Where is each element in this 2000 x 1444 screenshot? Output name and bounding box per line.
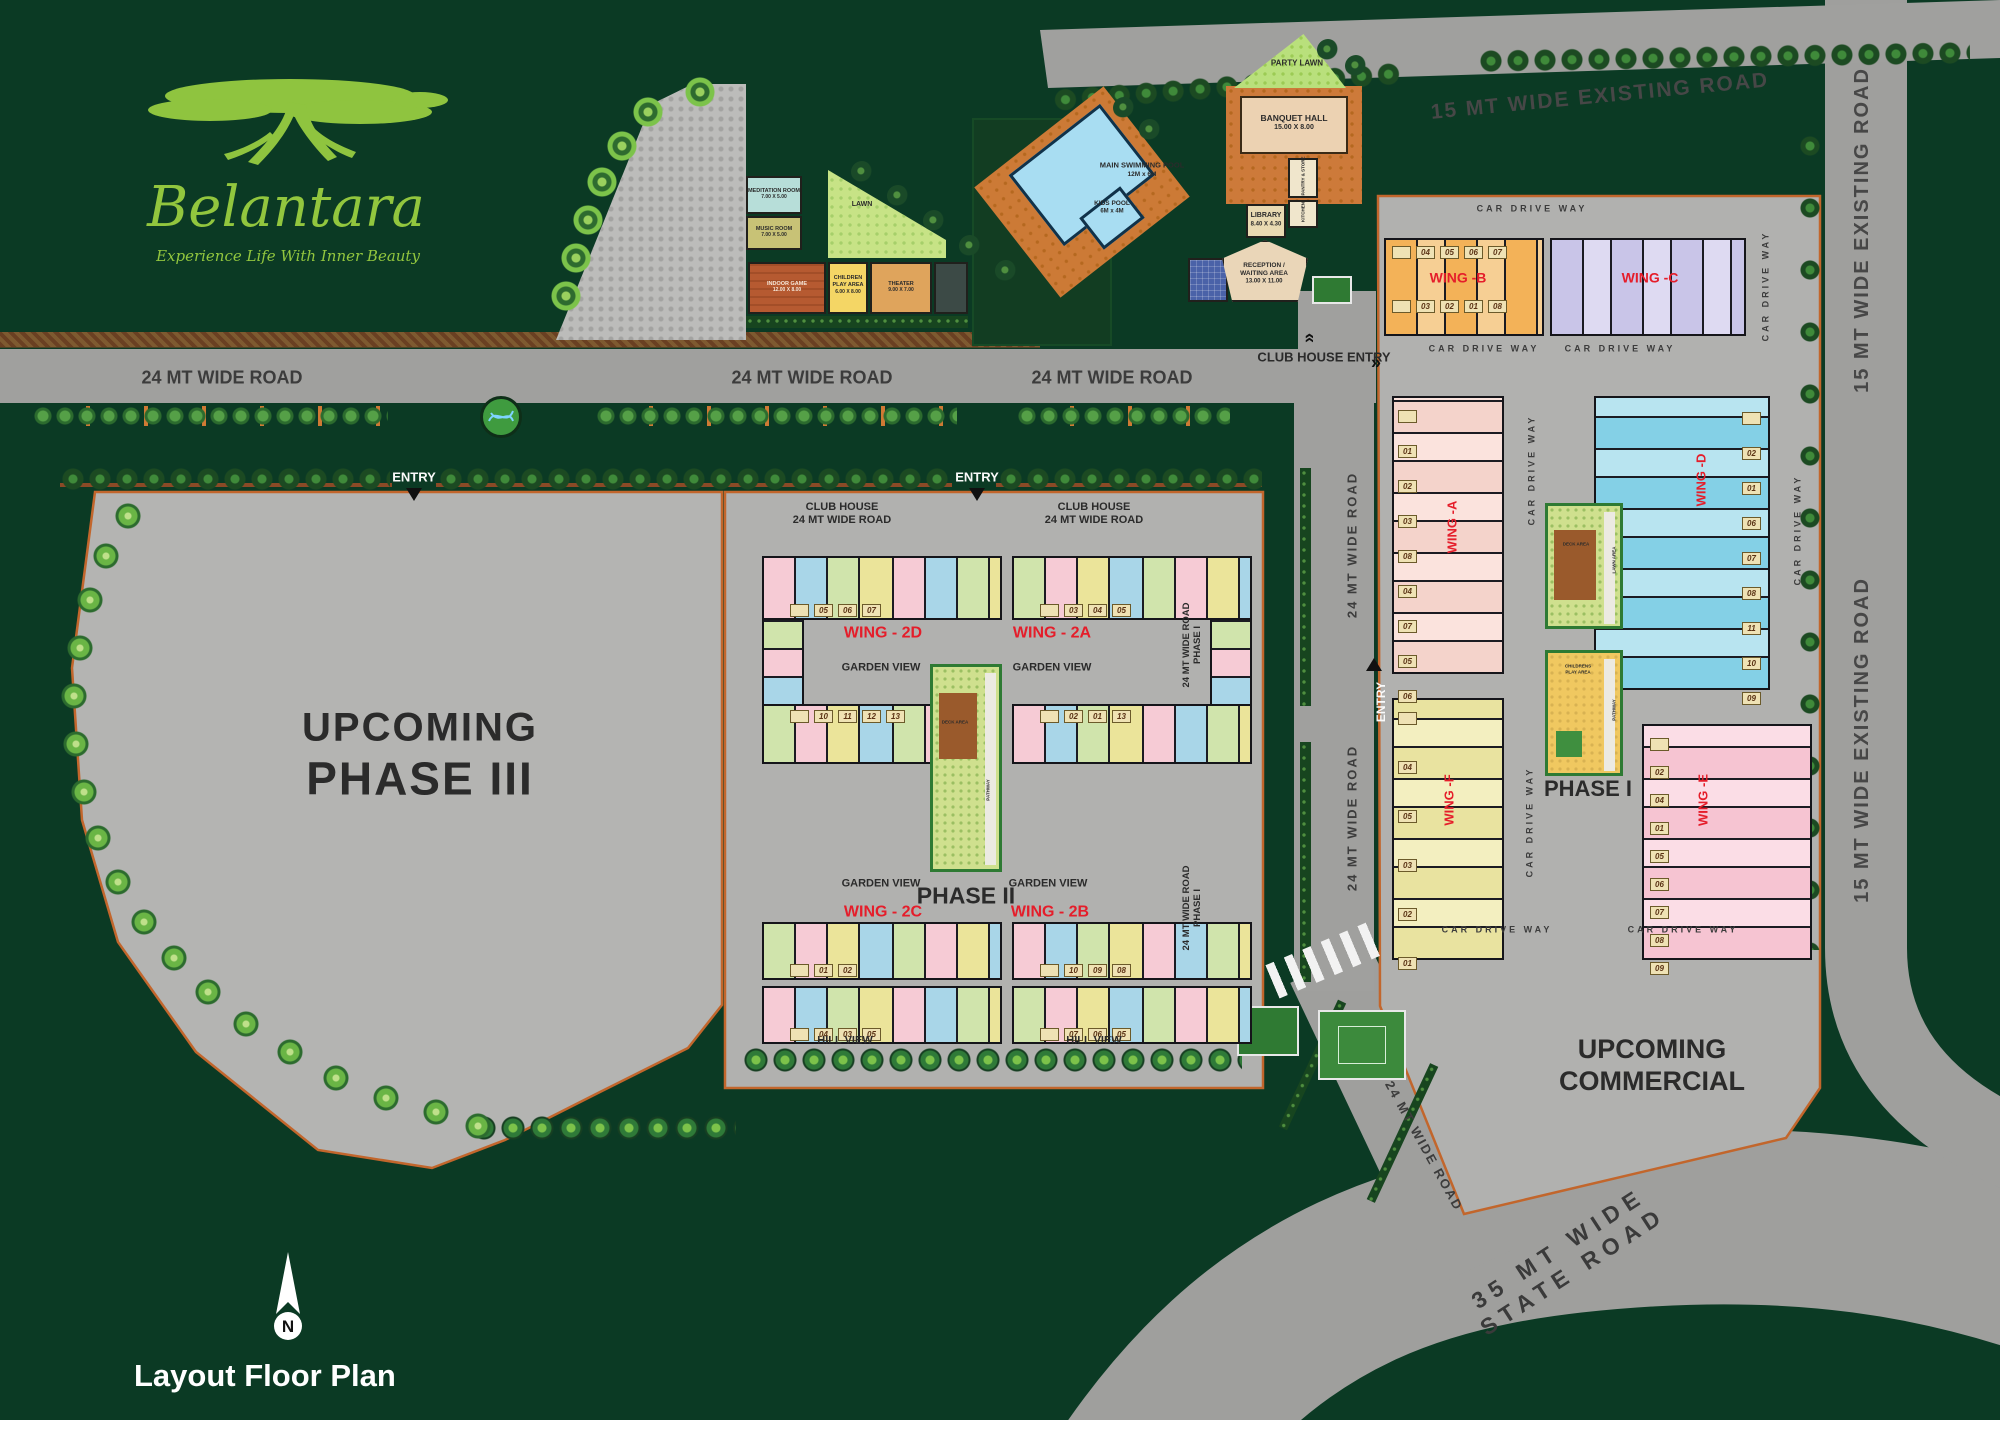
- unit-number: 11: [838, 710, 857, 723]
- unit-number: 07: [1742, 552, 1761, 565]
- sport-court-large: [1318, 1010, 1406, 1080]
- tree-row: [470, 1114, 736, 1142]
- childrens-play-line1: CHILDRENS: [1565, 663, 1591, 668]
- unit-number: 01: [814, 964, 833, 977]
- reception-line1: RECEPTION /: [1243, 262, 1285, 270]
- music-dim: 7.00 X 5.00: [761, 233, 787, 239]
- banquet-hall-label: BANQUET HALL: [1260, 113, 1327, 123]
- library-label: LIBRARY: [1251, 212, 1282, 220]
- unit-number: 02: [1440, 300, 1459, 313]
- unit-number: [790, 710, 809, 723]
- club-sport-court: [1312, 276, 1352, 304]
- unit-numbers-wing-f: 0405030201: [1398, 712, 1417, 970]
- unit-number: 04: [1398, 761, 1417, 774]
- car-drive-way-label: CAR DRIVE WAY: [1429, 344, 1540, 355]
- unit-number: 08: [1112, 964, 1131, 977]
- main-pool-label: MAIN SWIMMING POOL: [1100, 162, 1185, 171]
- tree-icon: [323, 1065, 349, 1091]
- sheet-edge: [0, 1420, 2000, 1444]
- unit-number: 09: [1088, 964, 1107, 977]
- building-wing-2d-west: [762, 618, 804, 706]
- play-lawn-patch: [1556, 731, 1582, 757]
- tree-icon: [995, 260, 1017, 282]
- phase3-line2: PHASE III: [302, 751, 538, 805]
- north-boundary-wall: [0, 332, 1040, 347]
- unit-number: 02: [838, 964, 857, 977]
- logo-wordmark: Belantara: [147, 175, 425, 241]
- phase1-label: PHASE I: [1544, 776, 1632, 802]
- hill-view-label: HILL VIEW: [1066, 1035, 1121, 1048]
- unit-number: 06: [1650, 878, 1669, 891]
- indoor-game-dim: 12.00 X 8.00: [773, 288, 801, 294]
- unit-number: 03: [1398, 515, 1417, 528]
- unit-number: 08: [1650, 934, 1669, 947]
- phase2-east-road-label-upper: 24 MT WIDE ROAD PHASE I: [1181, 603, 1203, 688]
- unit-number: [1398, 410, 1417, 423]
- unit-number: 04: [1416, 246, 1435, 259]
- unit-numbers-wing-2c-top: 0102: [790, 964, 857, 977]
- unit-number: [1392, 246, 1411, 259]
- court-markings: [1338, 1026, 1386, 1064]
- unit-number: 03: [1064, 604, 1083, 617]
- unit-number: 06: [838, 604, 857, 617]
- club-entry-up-arrow-icon: »: [1298, 333, 1319, 343]
- car-drive-way-label: CAR DRIVE WAY: [1793, 475, 1804, 586]
- north-compass-icon: N: [258, 1252, 318, 1344]
- unit-number: 05: [1440, 246, 1459, 259]
- phase1-lawn-label: LAWN AREA: [1611, 546, 1616, 573]
- road-label-main-2: 24 MT WIDE ROAD: [731, 367, 892, 388]
- tree-icon: [93, 543, 119, 569]
- wing-2b-label: WING - 2B: [1011, 904, 1089, 923]
- tree-icon: [77, 587, 103, 613]
- unit-numbers-wing-e: 0204010506070809: [1650, 738, 1669, 975]
- unit-number: 08: [1398, 550, 1417, 563]
- unit-number: 06: [1464, 246, 1483, 259]
- tree-icon: [633, 97, 663, 127]
- phase3-area-label: UPCOMING PHASE III: [302, 704, 538, 805]
- wing-f-label: WING -F: [1441, 774, 1456, 825]
- club-house-line1: CLUB HOUSE: [1045, 501, 1143, 514]
- commercial-area-label: UPCOMING COMMERCIAL: [1559, 1034, 1745, 1098]
- phase3-line1: UPCOMING: [302, 704, 538, 751]
- hill-view-label: HILL VIEW: [817, 1035, 872, 1048]
- wing-2d-label: WING - 2D: [844, 625, 922, 644]
- entry-arrow-west-icon: [406, 488, 422, 501]
- unit-number: 10: [814, 710, 833, 723]
- kids-pool-label: KIDS POOL: [1094, 200, 1130, 208]
- unit-numbers-wing-2a-bottom: 020113: [1040, 710, 1131, 723]
- unit-number: 01: [1742, 482, 1761, 495]
- tree-icon: [1345, 55, 1367, 77]
- unit-number: 13: [1112, 710, 1131, 723]
- car-drive-way-label: CAR DRIVE WAY: [1525, 767, 1536, 878]
- tree-icon: [423, 1099, 449, 1125]
- deck-area: [939, 693, 977, 759]
- wing-b-label: WING -B: [1430, 270, 1487, 287]
- meditation-dim: 7.00 X 5.00: [761, 195, 787, 201]
- tree-icon: [959, 235, 981, 257]
- commercial-line1: UPCOMING: [1559, 1034, 1745, 1066]
- unit-number: 02: [1064, 710, 1083, 723]
- logo-tagline: Experience Life With Inner Beauty: [156, 248, 420, 266]
- unit-number: 04: [1650, 794, 1669, 807]
- phase2-deck-label: DECK AREA: [942, 719, 969, 724]
- garden-pathway: [985, 673, 996, 865]
- tree-icon: [685, 77, 715, 107]
- club-entry-right-arrow-icon: »: [1371, 352, 1381, 373]
- tree-icon: [1139, 119, 1161, 141]
- kitchen-label: KITCHEN: [1300, 202, 1305, 222]
- road-label-right-existing-upper: 15 MT WIDE EXISTING ROAD: [1851, 67, 1875, 393]
- building-wing-2a-east: [1210, 618, 1252, 706]
- unit-numbers-wing-2b-top: 100908: [1040, 964, 1131, 977]
- unit-number: 03: [1398, 859, 1417, 872]
- unit-numbers-wing-d: 0201060708111009: [1742, 412, 1761, 705]
- wing-c-label: WING -C: [1622, 270, 1679, 287]
- tree-row: [998, 466, 1262, 493]
- unit-number: 01: [1650, 822, 1669, 835]
- unit-number: 10: [1742, 657, 1761, 670]
- club-house-line2: 24 MT WIDE ROAD: [793, 514, 891, 527]
- tree-icon: [551, 281, 581, 311]
- p2edge-line2: PHASE I: [1192, 866, 1203, 951]
- compass-n-letter: N: [282, 1317, 294, 1336]
- childrens-play-line2: PLAY AREA: [1565, 669, 1590, 674]
- unit-number: 01: [1464, 300, 1483, 313]
- tree-icon: [277, 1039, 303, 1065]
- layout-floor-plan-canvas: Belantara Experience Life With Inner Bea…: [0, 0, 2000, 1444]
- tree-icon: [561, 243, 591, 273]
- unit-number: 05: [1112, 604, 1131, 617]
- tree-icon: [71, 779, 97, 805]
- tree-icon: [63, 731, 89, 757]
- unit-number: 05: [814, 604, 833, 617]
- unit-number: 06: [1398, 690, 1417, 703]
- unit-number: [1650, 738, 1669, 751]
- tree-icon: [851, 161, 873, 183]
- road-hedge: [1300, 468, 1311, 706]
- roundabout: [480, 396, 522, 438]
- unit-numbers-wing-b-bottom: 03020108: [1392, 300, 1507, 313]
- phase1-deck-label: DECK AREA: [1563, 541, 1590, 546]
- phase2-label: PHASE II: [917, 882, 1015, 909]
- club-lawn-label: LAWN: [852, 201, 873, 209]
- tree-icon: [105, 869, 131, 895]
- p2edge-line1: 24 MT WIDE ROAD: [1181, 866, 1192, 951]
- unit-number: 07: [1650, 906, 1669, 919]
- car-drive-way-label: CAR DRIVE WAY: [1565, 344, 1676, 355]
- tree-icon: [195, 979, 221, 1005]
- club-house-line1: CLUB HOUSE: [793, 501, 891, 514]
- unit-number: 02: [1650, 766, 1669, 779]
- wing-a-label: WING -A: [1444, 501, 1459, 554]
- tree-row: [60, 466, 390, 493]
- reception-line2: WAITING AREA: [1240, 270, 1288, 278]
- tree-icon: [607, 131, 637, 161]
- tree-icon: [115, 503, 141, 529]
- tree-row: [742, 1046, 1242, 1076]
- tree-icon: [923, 210, 945, 232]
- club-hedge: [746, 316, 968, 328]
- unit-number: 09: [1742, 692, 1761, 705]
- entry-arrow-center-icon: [969, 488, 985, 501]
- road-label-main-3: 24 MT WIDE ROAD: [1031, 367, 1192, 388]
- toilets-block: [934, 262, 968, 314]
- club-house-road-label-left: CLUB HOUSE 24 MT WIDE ROAD: [793, 501, 891, 527]
- road-median-planter: [1016, 406, 1230, 426]
- phase2-pathway-label: PATHWAY: [985, 779, 990, 800]
- unit-number: [1040, 1028, 1059, 1041]
- unit-number: 13: [886, 710, 905, 723]
- tree-row: [438, 466, 952, 493]
- unit-number: 11: [1742, 622, 1761, 635]
- blue-tiled-patio: [1188, 258, 1228, 302]
- banquet-hall-dim: 15.00 X 8.00: [1274, 124, 1314, 132]
- tree-icon: [465, 1113, 491, 1139]
- unit-number: 05: [1398, 655, 1417, 668]
- garden-view-label: GARDEN VIEW: [1009, 878, 1088, 891]
- commercial-line2: COMMERCIAL: [1559, 1066, 1745, 1098]
- wing-e-label: WING -E: [1695, 774, 1710, 826]
- reception-dim: 13.00 X 11.00: [1245, 278, 1282, 285]
- unit-number: 10: [1064, 964, 1083, 977]
- unit-numbers-wing-2d-top: 050607: [790, 604, 881, 617]
- car-drive-way-label: CAR DRIVE WAY: [1628, 925, 1739, 936]
- wing-d-label: WING -D: [1693, 454, 1708, 507]
- unit-number: 08: [1488, 300, 1507, 313]
- plan-title: Layout Floor Plan: [134, 1358, 396, 1394]
- tree-icon: [587, 167, 617, 197]
- unit-number: [1040, 604, 1059, 617]
- unit-numbers-wing-2a-top: 030405: [1040, 604, 1131, 617]
- car-drive-way-label: CAR DRIVE WAY: [1477, 204, 1588, 215]
- unit-numbers-wing-2d-bottom: 10111213: [790, 710, 905, 723]
- road-label-central-upper: 24 MT WIDE ROAD: [1344, 472, 1359, 618]
- unit-number: 02: [1398, 908, 1417, 921]
- car-drive-way-label: CAR DRIVE WAY: [1761, 231, 1772, 342]
- tree-icon: [161, 945, 187, 971]
- unit-number: 05: [1398, 810, 1417, 823]
- tree-icon: [233, 1011, 259, 1037]
- road-label-right-existing-lower: 15 MT WIDE EXISTING ROAD: [1851, 577, 1875, 903]
- tree-icon: [373, 1085, 399, 1111]
- roundabout-sculpture-icon: [483, 399, 519, 435]
- unit-number: 12: [862, 710, 881, 723]
- wing-2c-label: WING - 2C: [844, 904, 922, 923]
- unit-number: 01: [1398, 957, 1417, 970]
- unit-number: [1392, 300, 1411, 313]
- unit-number: [790, 604, 809, 617]
- theater-dim: 9.00 X 7.00: [888, 288, 914, 294]
- unit-number: [790, 964, 809, 977]
- phase2-east-road-label-lower: 24 MT WIDE ROAD PHASE I: [1181, 866, 1203, 951]
- unit-number: [1040, 964, 1059, 977]
- road-median-planter: [32, 406, 388, 426]
- tree-icon: [61, 683, 87, 709]
- children-play-line2: PLAY AREA: [833, 282, 864, 288]
- children-play-line1: CHILDREN: [834, 275, 862, 281]
- unit-number: 01: [1398, 445, 1417, 458]
- garden-view-label: GARDEN VIEW: [842, 878, 921, 891]
- entry-label-center: ENTRY: [955, 469, 999, 484]
- building-wing-c: [1550, 238, 1746, 336]
- unit-number: 01: [1088, 710, 1107, 723]
- pantry-label: PANTRY & STORE: [1300, 156, 1305, 195]
- unit-number: 02: [1742, 447, 1761, 460]
- main-pool-dim: 12M x 6M: [1128, 171, 1157, 179]
- party-lawn-label: PARTY LAWN: [1271, 58, 1323, 67]
- unit-number: 08: [1742, 587, 1761, 600]
- unit-number: 04: [1398, 585, 1417, 598]
- belantara-tree-logo-icon: [120, 62, 450, 187]
- p2edge-line1: 24 MT WIDE ROAD: [1181, 603, 1192, 688]
- phase1-pathway-label: PATHWAY: [1611, 699, 1616, 720]
- children-play-dim: 6.00 X 8.00: [835, 290, 861, 296]
- road-label-main-1: 24 MT WIDE ROAD: [141, 367, 302, 388]
- unit-number: 07: [1398, 620, 1417, 633]
- unit-number: [1398, 712, 1417, 725]
- unit-number: 05: [1650, 850, 1669, 863]
- entry-label-west: ENTRY: [392, 469, 436, 484]
- phase2-central-garden: [930, 664, 1002, 872]
- car-drive-way-label: CAR DRIVE WAY: [1442, 925, 1553, 936]
- garden-view-label: GARDEN VIEW: [1013, 662, 1092, 675]
- unit-number: 07: [862, 604, 881, 617]
- wing-2a-label: WING - 2A: [1013, 625, 1091, 644]
- unit-number: [1040, 710, 1059, 723]
- car-drive-way-label: CAR DRIVE WAY: [1527, 415, 1538, 526]
- road-label-central-lower: 24 MT WIDE ROAD: [1344, 745, 1359, 891]
- tree-icon: [573, 205, 603, 235]
- kids-pool-dim: 6M x 4M: [1100, 208, 1123, 215]
- club-house-line2: 24 MT WIDE ROAD: [1045, 514, 1143, 527]
- tree-icon: [887, 185, 909, 207]
- garden-view-label: GARDEN VIEW: [842, 662, 921, 675]
- unit-numbers-wing-b-top: 04050607: [1392, 246, 1507, 259]
- unit-number: 06: [1742, 517, 1761, 530]
- unit-number: [1742, 412, 1761, 425]
- p2edge-line2: PHASE I: [1192, 603, 1203, 688]
- road-median-planter: [595, 406, 957, 426]
- entry-label-phase1: ENTRY: [1374, 682, 1388, 722]
- unit-number: [790, 1028, 809, 1041]
- unit-number: 04: [1088, 604, 1107, 617]
- tree-icon: [67, 635, 93, 661]
- library-dim: 8.40 X 4.30: [1251, 221, 1282, 228]
- tree-icon: [131, 909, 157, 935]
- tree-icon: [85, 825, 111, 851]
- unit-number: 02: [1398, 480, 1417, 493]
- unit-numbers-wing-a: 0102030804070506: [1398, 410, 1417, 703]
- unit-number: 09: [1650, 962, 1669, 975]
- unit-number: 07: [1488, 246, 1507, 259]
- tree-icon: [1113, 97, 1135, 119]
- unit-number: 03: [1416, 300, 1435, 313]
- club-house-road-label-right: CLUB HOUSE 24 MT WIDE ROAD: [1045, 501, 1143, 527]
- entry-arrow-phase1-icon: [1366, 658, 1382, 671]
